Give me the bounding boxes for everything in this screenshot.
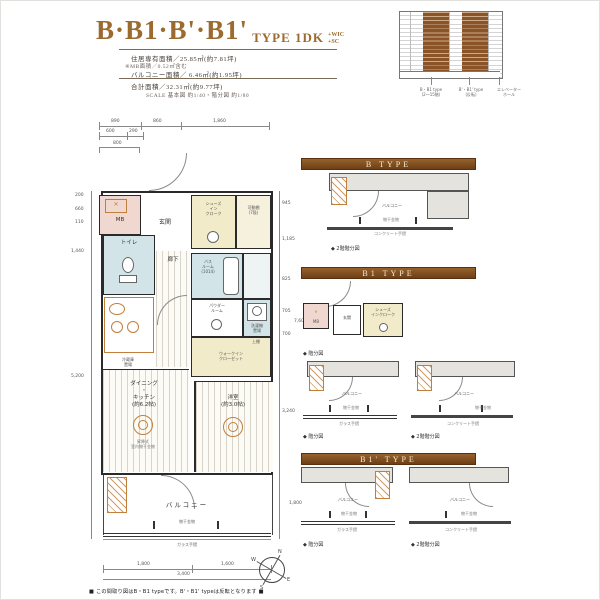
mini-plan-b1p-2f: バルコニー 物干金物 コンクリート手摺	[409, 467, 517, 533]
dim-left-110: 110	[75, 220, 84, 225]
section-header-b-type: B TYPE	[301, 158, 476, 170]
title-rule-2	[119, 78, 337, 79]
room-wic-label: ウォークイン クローゼット	[197, 351, 265, 361]
dim-tick	[139, 147, 140, 153]
dim-line	[103, 569, 271, 570]
room-toilet-label: トイレ	[107, 240, 151, 247]
laundry-lift-circle-2-inner	[228, 422, 238, 432]
dim-line	[91, 191, 92, 539]
mini-plan-b1-entrance: ✕ MB 玄関 シューズ インクローク	[301, 281, 411, 345]
mini-slab	[409, 467, 509, 483]
toilet-fixture	[122, 257, 134, 273]
mini-balcony-label: バルコニー	[325, 497, 371, 502]
mini-slab-notch	[427, 191, 469, 219]
dim-bottom-1600: 1,600	[221, 562, 234, 567]
title-tags: +WIC +SC	[328, 32, 344, 46]
mini-rail-label: コンクリート手摺	[429, 527, 493, 532]
dim-top-890: 890	[111, 119, 120, 124]
main-floorplan: 890 860 1,860 600 290 800 200 660 110 1,…	[61, 119, 306, 600]
mini-hook	[359, 217, 361, 224]
railing-line	[103, 536, 271, 537]
uedana-label: 上棚	[243, 339, 269, 344]
mini-genkan	[333, 305, 361, 335]
room-hall-label: 廊下	[157, 257, 189, 264]
scale-note: SCALE 基本図 約1/40・階分図 約1/80	[146, 91, 249, 99]
glass-rail-label: ガラス手摺	[161, 542, 213, 547]
mini-monohoshi-label: 物干金物	[333, 511, 365, 516]
monohoshi-label: 物干金物	[161, 519, 213, 524]
mini-column-hatch	[375, 471, 390, 499]
mini-slab	[329, 173, 469, 191]
mini-balcony-label: バルコニー	[441, 391, 487, 396]
laundry-lift-circle-1-inner	[138, 420, 148, 430]
mini-door-arc	[439, 377, 463, 401]
locator-highlight-B1	[436, 12, 449, 72]
locator-highlight-B1p	[475, 12, 488, 72]
mini-monohoshi-label: 物干金物	[335, 405, 367, 410]
room-bath-label: バス ルーム (1014)	[193, 259, 223, 274]
tag-sc: +SC	[328, 39, 344, 46]
mini-balcony-label: バルコニー	[329, 391, 375, 396]
mini-railing	[303, 415, 397, 416]
dim-left-660: 660	[75, 207, 84, 212]
mini-balcony-label: バルコニー	[437, 497, 483, 502]
locator-caption-1: B・B1 type (2〜15階)	[409, 87, 453, 97]
dim-line	[103, 579, 271, 580]
spec-total: 合計面積／32.31㎡(約9.77坪)	[131, 81, 223, 91]
room-storage	[243, 253, 271, 299]
dim-line	[99, 136, 143, 137]
dim-tick	[103, 565, 104, 573]
kitchen-burner	[111, 321, 123, 333]
mini-door-arc	[345, 483, 369, 507]
dim-top-860: 860	[153, 119, 162, 124]
caption-b1-entrance: ◆ 階分図	[303, 350, 323, 357]
section-header-b1p-type: B1' TYPE	[301, 453, 476, 465]
caption-b1-std: ◆ 階分図	[303, 433, 323, 440]
dim-tick	[99, 147, 100, 153]
mini-door-arc	[329, 377, 353, 401]
mb-x-mark: ✕	[105, 201, 127, 209]
dim-balcony-side: 1,800	[289, 501, 302, 506]
dim-right-825: 825	[282, 277, 291, 282]
dim-tick	[192, 565, 193, 573]
mini-hook	[415, 217, 417, 224]
lift-dryer-label: 昇降式 室内物干金物	[119, 439, 167, 449]
dim-right-945: 945	[282, 201, 291, 206]
floorplan-sheet: B·B1·B'·B1' TYPE 1DK +WIC +SC 住居専有面積／25.…	[0, 0, 600, 600]
balcony-label: バルコニー	[149, 501, 225, 509]
mini-monohoshi-label: 物干金物	[369, 217, 413, 222]
dim-line	[99, 147, 139, 148]
compass-w: W	[251, 557, 256, 563]
section-header-b1-type: B1 TYPE	[301, 267, 476, 279]
mini-monohoshi-label: 物干金物	[465, 405, 501, 410]
mini-hook	[365, 511, 367, 518]
locator-gridline	[449, 12, 450, 72]
room-bedroom-label: 洋室 (約3.0帖)	[207, 395, 259, 409]
fridge-label: 冷蔵庫 置場	[105, 357, 151, 367]
caption-b1p-2f: ◆ 2階階分図	[411, 541, 440, 548]
locator-leader	[499, 77, 500, 85]
caption-b-2f: ◆ 2階階分図	[331, 245, 360, 252]
dim-left-1440: 1,440	[71, 249, 84, 254]
mini-hook	[445, 511, 447, 518]
compass-n: N	[278, 549, 282, 555]
room-dk-label: ダイニング ・ キッチン (約6.2帖)	[113, 381, 175, 409]
locator-leader	[431, 77, 432, 85]
mini-balcony-label: バルコニー	[367, 203, 417, 208]
locator-caption-3: エレベーター ホール	[489, 87, 529, 97]
bathtub	[223, 257, 239, 295]
locator-ground-floor	[400, 71, 500, 78]
room-shelf-label: 可動棚 (7段)	[238, 205, 269, 215]
locator-highlight-B	[423, 12, 436, 72]
dim-tick	[143, 132, 144, 140]
mini-mb-x: ✕	[303, 309, 329, 314]
dim-top-600: 600	[106, 129, 115, 134]
dim-tick	[269, 122, 270, 130]
dim-right-700: 700	[282, 332, 291, 337]
mini-railing	[301, 524, 395, 525]
mini-railing	[327, 227, 453, 230]
dim-bottom-total: 3,400	[177, 572, 190, 577]
dim-left-5200: 5,200	[71, 374, 84, 379]
mirror-note: ■ この間取り図はB・B1 typeです。B'・B1' typeは反転となります…	[89, 588, 264, 595]
mini-railing	[301, 521, 395, 522]
mini-genkan-label: 玄関	[335, 315, 359, 320]
kitchen-burner	[127, 321, 139, 333]
dim-bottom-1800: 1,800	[137, 562, 150, 567]
dim-top-290: 290	[129, 129, 138, 134]
compass-e: E	[287, 577, 290, 583]
dim-tick	[141, 122, 142, 130]
dim-right-3240: 3,240	[282, 409, 295, 414]
mini-plan-b1-std: バルコニー 物干金物 ガラス手摺	[301, 361, 399, 427]
mini-mb	[303, 303, 329, 329]
locator-caption-2: B'・B1' type (反転)	[451, 87, 491, 97]
locator-leader	[469, 77, 470, 85]
railing-line	[103, 533, 271, 534]
dim-right-1185: 1,185	[282, 237, 295, 242]
room-shelf	[236, 195, 271, 249]
locator-gridline	[488, 12, 489, 72]
mini-sic-label: シューズ インクローク	[365, 307, 401, 317]
mini-hook	[329, 405, 331, 412]
caption-b1-2f: ◆ 2階階分図	[411, 433, 440, 440]
dim-top-1860: 1,860	[213, 119, 226, 124]
washbasin	[211, 319, 222, 330]
dim-line	[99, 126, 269, 127]
mini-railing	[303, 418, 397, 419]
dry-hook	[153, 521, 155, 529]
mini-mb-label: MB	[303, 319, 329, 324]
mini-hook	[439, 405, 441, 412]
locator-gridline	[410, 12, 411, 72]
mini-column-hatch	[331, 177, 347, 205]
room-genkan-label: 玄関	[145, 219, 185, 227]
title-block: B·B1·B'·B1' TYPE 1DK +WIC +SC	[96, 15, 344, 46]
mini-railing	[411, 415, 513, 418]
room-sic-label: シューズ イン クローク	[193, 201, 234, 216]
dim-top-800: 800	[113, 141, 122, 146]
laundry-drain	[252, 306, 262, 316]
dim-tick	[127, 132, 128, 140]
mini-plan-b1-2f: バルコニー 物干金物 コンクリート手摺	[409, 361, 517, 427]
entrance-door-arc	[149, 153, 187, 191]
room-mb-label: MB	[101, 217, 139, 224]
dim-right-705: 705	[282, 309, 291, 314]
kitchen-sink	[109, 303, 125, 315]
balcony-column-hatch	[107, 477, 127, 513]
mini-plan-b-2f: バルコニー 物干金物 コンクリート手摺	[319, 173, 469, 239]
page-title: B·B1·B'·B1'	[96, 15, 248, 46]
dim-tick	[181, 122, 182, 130]
railing-line	[103, 539, 271, 540]
sic-fixture	[207, 231, 219, 243]
mini-sic-fixture	[379, 323, 388, 332]
mini-monohoshi-label: 物干金物	[451, 511, 487, 516]
mini-hook	[367, 405, 369, 412]
title-rule-1	[119, 49, 337, 50]
caption-b1p-std: ◆ 階分図	[303, 541, 323, 548]
title-type: TYPE 1DK	[252, 30, 324, 46]
room-laundry-label: 洗濯機 置場	[244, 323, 270, 333]
unit-location-diagram	[399, 11, 503, 79]
mini-railing	[409, 521, 511, 524]
dry-hook	[217, 521, 219, 529]
dim-tick	[99, 122, 100, 130]
mini-column-hatch	[417, 365, 432, 391]
mini-plan-b1p-std: バルコニー 物干金物 ガラス手摺	[301, 467, 399, 533]
mini-hook	[329, 511, 331, 518]
mini-column-hatch	[309, 365, 324, 391]
mini-rail-label: コンクリート手摺	[355, 231, 425, 236]
tag-wic: +WIC	[328, 32, 344, 39]
dim-tick	[99, 132, 100, 140]
dim-line	[279, 191, 280, 539]
toilet-tank	[119, 275, 137, 283]
mini-rail-label: コンクリート手摺	[431, 421, 495, 426]
mini-door-arc	[469, 483, 493, 507]
mini-rail-label: ガラス手摺	[327, 421, 371, 426]
mini-rail-label: ガラス手摺	[325, 527, 369, 532]
room-powder-label: パウダー ルーム	[194, 303, 240, 313]
locator-highlight-Bp	[462, 12, 475, 72]
dim-left-200: 200	[75, 193, 84, 198]
